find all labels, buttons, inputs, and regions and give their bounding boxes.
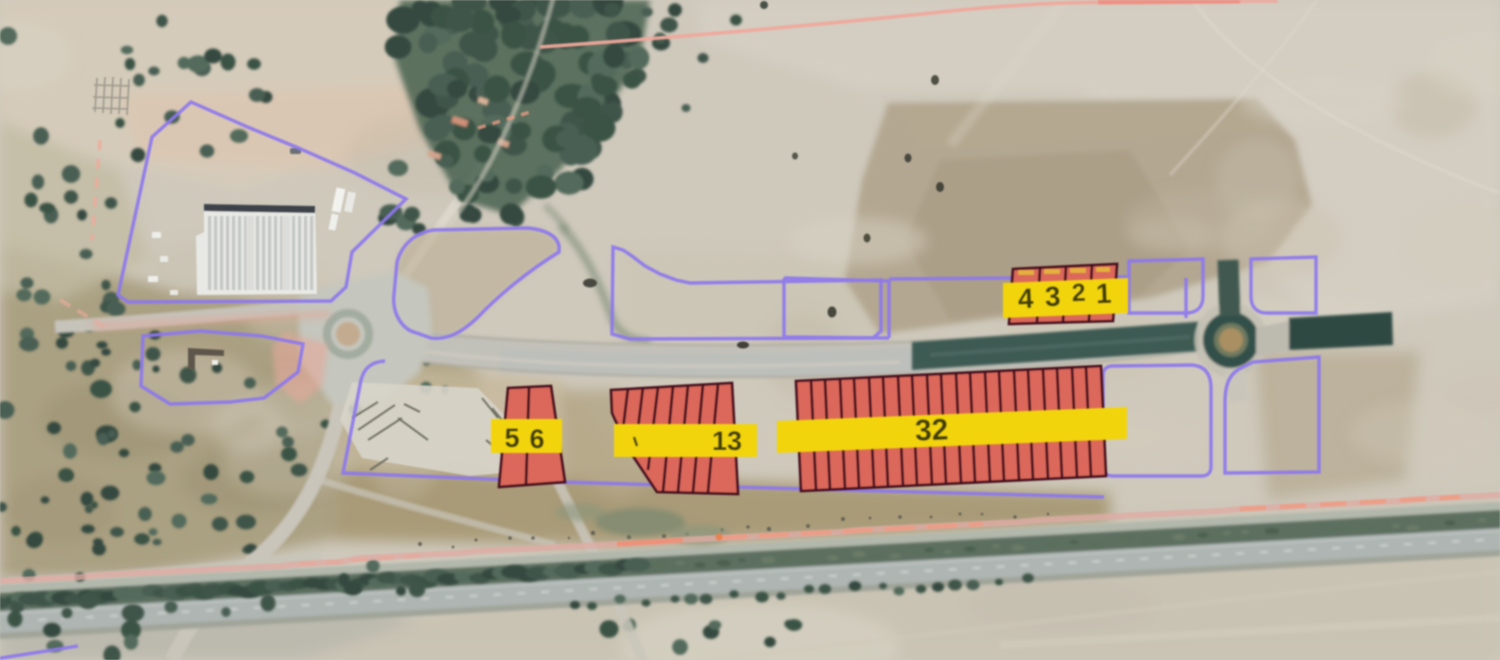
svg-text:1: 1 xyxy=(1095,278,1112,310)
svg-text:6: 6 xyxy=(529,424,544,454)
svg-text:3: 3 xyxy=(1044,281,1061,313)
svg-text:4: 4 xyxy=(1017,283,1034,315)
svg-text:13: 13 xyxy=(712,426,742,456)
svg-text:32: 32 xyxy=(914,413,949,447)
svg-text:2: 2 xyxy=(1071,279,1086,307)
svg-text:5: 5 xyxy=(504,423,519,453)
